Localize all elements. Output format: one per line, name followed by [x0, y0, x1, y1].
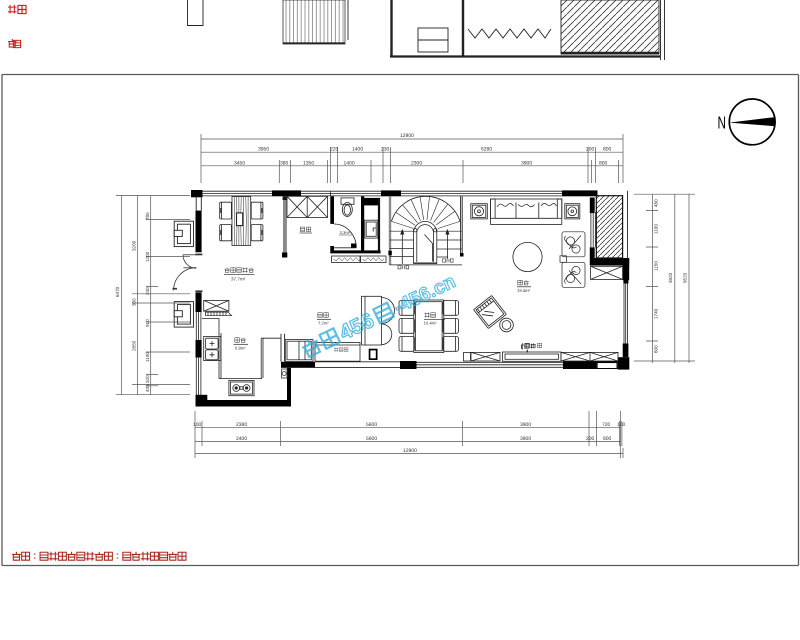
svg-text:100: 100	[193, 422, 202, 428]
svg-text:5600: 5600	[366, 436, 377, 442]
svg-text:1200: 1200	[145, 251, 150, 262]
svg-text:445: 445	[145, 384, 150, 392]
svg-text:3450: 3450	[234, 160, 245, 166]
svg-text:1740: 1740	[654, 308, 659, 319]
svg-text:300: 300	[132, 298, 137, 306]
svg-text:3920: 3920	[668, 272, 673, 283]
svg-text:800: 800	[603, 436, 612, 442]
svg-text:220: 220	[330, 147, 339, 153]
svg-text:2400: 2400	[236, 436, 247, 442]
svg-text:12900: 12900	[400, 133, 414, 139]
svg-text:320: 320	[145, 375, 150, 383]
svg-text:3900: 3900	[520, 436, 531, 442]
svg-text:785: 785	[145, 212, 150, 220]
svg-text:3.3m²: 3.3m²	[340, 230, 351, 235]
svg-text:6280: 6280	[481, 147, 492, 153]
svg-text:480: 480	[654, 199, 659, 207]
svg-text:720: 720	[602, 422, 611, 428]
svg-text:1400: 1400	[344, 160, 355, 166]
svg-text:240: 240	[145, 287, 150, 295]
svg-text:5600: 5600	[366, 422, 377, 428]
svg-text:800: 800	[603, 147, 612, 153]
svg-text:N: N	[718, 113, 727, 133]
svg-text:37.7m²: 37.7m²	[231, 277, 246, 282]
svg-text:1400: 1400	[352, 147, 363, 153]
svg-text:1350: 1350	[303, 160, 314, 166]
svg-text:3200: 3200	[132, 240, 137, 251]
svg-text:1100: 1100	[145, 352, 150, 362]
svg-text:6470: 6470	[115, 286, 120, 297]
svg-text:2650: 2650	[132, 340, 137, 351]
svg-text:380: 380	[280, 160, 289, 166]
svg-text:12900: 12900	[403, 448, 417, 454]
svg-text:600: 600	[654, 345, 659, 353]
svg-text:7.2m²: 7.2m²	[318, 321, 329, 326]
svg-text:3950: 3950	[258, 147, 269, 153]
svg-text:2380: 2380	[236, 422, 247, 428]
svg-text:100: 100	[617, 422, 626, 428]
svg-text:3900: 3900	[521, 160, 532, 166]
svg-text:1150: 1150	[654, 261, 659, 271]
svg-text:800: 800	[599, 160, 608, 166]
svg-text:200: 200	[586, 147, 595, 153]
svg-text:200: 200	[586, 436, 595, 442]
svg-text:6.8m²: 6.8m²	[235, 346, 246, 351]
svg-text:9520: 9520	[683, 272, 688, 283]
svg-text:230: 230	[381, 147, 390, 153]
svg-text:3900: 3900	[520, 422, 531, 428]
svg-text:1100: 1100	[654, 224, 659, 234]
svg-text:10.4m²: 10.4m²	[424, 321, 438, 326]
svg-text:910: 910	[145, 319, 150, 327]
svg-text:19.4m²: 19.4m²	[517, 288, 531, 293]
svg-text:2300: 2300	[411, 160, 422, 166]
